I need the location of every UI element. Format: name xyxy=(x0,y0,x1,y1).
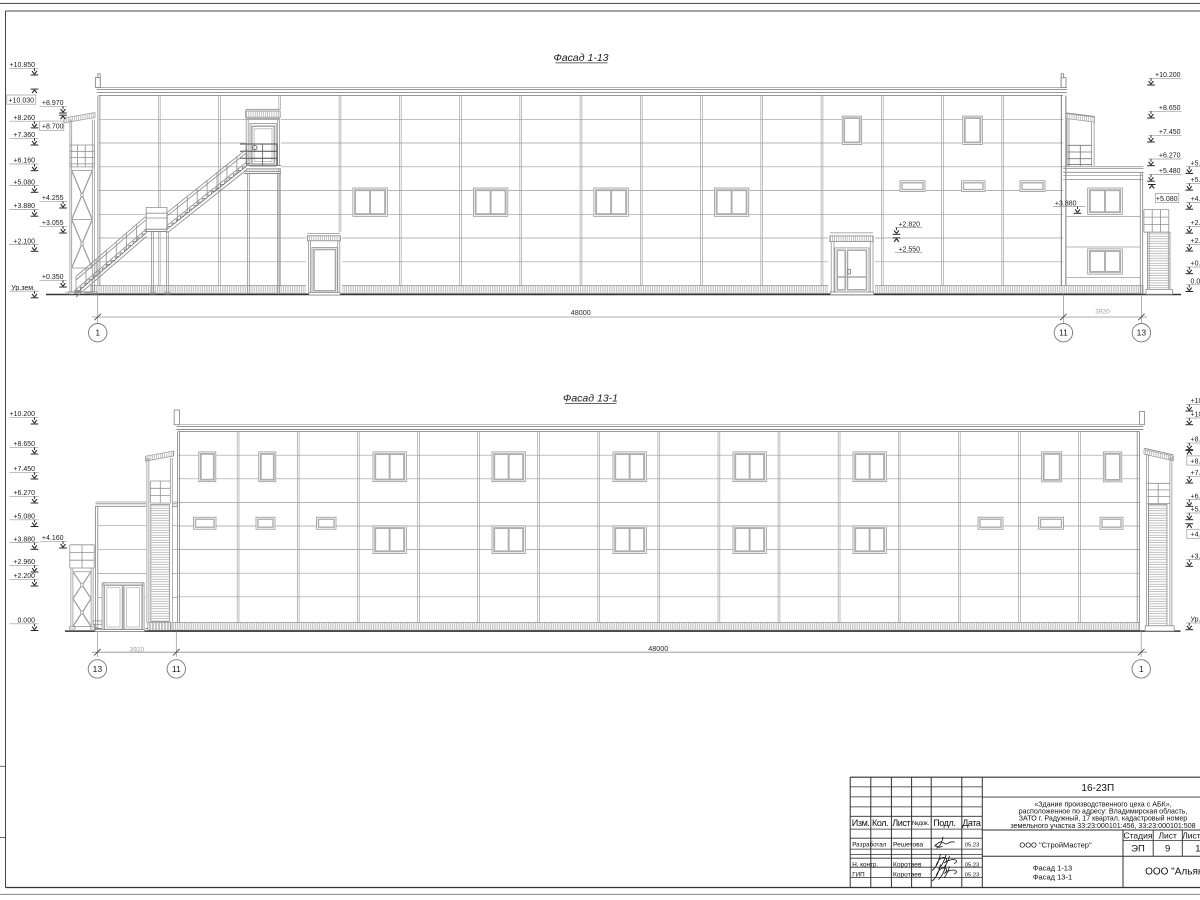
svg-text:Разработал: Разработал xyxy=(852,840,887,848)
svg-text:+4.160: +4.160 xyxy=(1191,532,1200,539)
svg-text:11: 11 xyxy=(172,664,181,674)
svg-text:48000: 48000 xyxy=(571,308,591,317)
svg-text:Листов: Листов xyxy=(1182,830,1200,840)
svg-text:Лист: Лист xyxy=(892,818,910,828)
svg-text:ООО "СтройМастер": ООО "СтройМастер" xyxy=(1019,841,1092,850)
svg-text:Фасад 1-13: Фасад 1-13 xyxy=(553,52,608,64)
svg-text:48000: 48000 xyxy=(648,644,668,653)
svg-text:Н. контр.: Н. контр. xyxy=(852,861,878,868)
svg-text:Кол.: Кол. xyxy=(872,818,888,828)
svg-text:Подл.: Подл. xyxy=(933,818,955,828)
svg-text:Фасад 13-1: Фасад 13-1 xyxy=(563,393,618,405)
svg-text:+8.650: +8.650 xyxy=(1159,105,1181,112)
svg-text:Стадия: Стадия xyxy=(1124,830,1153,840)
svg-text:ГИП: ГИП xyxy=(852,871,865,878)
svg-text:13: 13 xyxy=(1137,328,1147,338)
svg-text:Изм.: Изм. xyxy=(852,818,870,828)
svg-text:13: 13 xyxy=(93,664,103,674)
svg-text:9: 9 xyxy=(1165,844,1170,855)
svg-text:+5.080: +5.080 xyxy=(1156,196,1178,203)
svg-text:земельного участка 33:23:00010: земельного участка 33:23:000101:456, 33:… xyxy=(1010,822,1195,830)
svg-text:Коротаев: Коротаев xyxy=(893,871,922,878)
svg-text:11: 11 xyxy=(1059,328,1068,338)
svg-text:+8.700: +8.700 xyxy=(42,124,64,131)
svg-text:Фасад 13-1: Фасад 13-1 xyxy=(1033,873,1072,882)
svg-text:ЭП: ЭП xyxy=(1131,844,1145,855)
svg-text:+8.700: +8.700 xyxy=(1191,458,1200,465)
svg-text:05.23: 05.23 xyxy=(965,843,980,849)
svg-text:1: 1 xyxy=(1139,664,1144,674)
svg-text:3920: 3920 xyxy=(130,646,145,653)
svg-text:+8.970: +8.970 xyxy=(42,100,64,107)
svg-text:ООО "Альянс": ООО "Альянс" xyxy=(1145,867,1200,878)
svg-text:Решетова: Решетова xyxy=(893,841,924,848)
svg-text:3920: 3920 xyxy=(1095,308,1110,315)
svg-text:Коротаев: Коротаев xyxy=(893,861,922,868)
svg-text:05.23: 05.23 xyxy=(965,863,980,869)
svg-text:16-23П: 16-23П xyxy=(1081,783,1114,794)
svg-text:1: 1 xyxy=(95,328,100,338)
svg-text:Дата: Дата xyxy=(962,818,981,828)
svg-text:10: 10 xyxy=(1195,844,1200,855)
svg-text:+10.030: +10.030 xyxy=(9,98,35,105)
svg-text:05.23: 05.23 xyxy=(965,873,980,879)
svg-text:+10.850: +10.850 xyxy=(10,62,36,69)
svg-text:Фасад 1-13: Фасад 1-13 xyxy=(1033,863,1072,872)
svg-text:Лист: Лист xyxy=(1158,830,1177,840)
svg-text:+10.200: +10.200 xyxy=(1155,72,1181,79)
svg-text:№док.: №док. xyxy=(912,820,930,827)
